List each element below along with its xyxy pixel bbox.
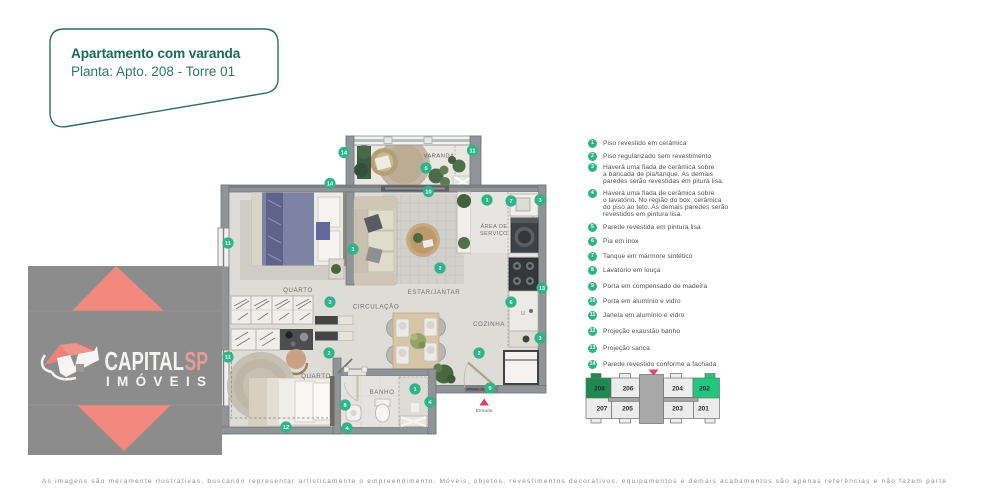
svg-text:2: 2 <box>328 300 331 306</box>
svg-text:CAPITAL: CAPITAL <box>105 346 185 376</box>
svg-text:13: 13 <box>539 286 545 292</box>
svg-text:SP: SP <box>185 346 209 376</box>
svg-text:ESTAR/JANTAR: ESTAR/JANTAR <box>408 289 461 296</box>
svg-text:u: u <box>521 310 525 317</box>
svg-text:201: 201 <box>698 406 709 413</box>
svg-text:8: 8 <box>343 403 346 409</box>
svg-text:2: 2 <box>438 266 441 272</box>
svg-text:10: 10 <box>425 190 431 196</box>
svg-text:CIRCULAÇÃO: CIRCULAÇÃO <box>353 304 400 311</box>
svg-text:11: 11 <box>225 355 231 361</box>
svg-text:VARANDA: VARANDA <box>423 154 454 160</box>
svg-text:QUARTO: QUARTO <box>301 373 331 380</box>
svg-text:206: 206 <box>623 386 634 393</box>
svg-text:11: 11 <box>470 149 476 155</box>
svg-text:BANHO: BANHO <box>369 389 394 396</box>
svg-text:1: 1 <box>351 247 354 253</box>
svg-text:12: 12 <box>283 425 289 431</box>
svg-text:204: 204 <box>672 386 683 393</box>
svg-text:14: 14 <box>327 182 334 188</box>
svg-text:203: 203 <box>672 406 683 413</box>
svg-text:2: 2 <box>477 351 480 357</box>
svg-text:3: 3 <box>538 198 541 204</box>
svg-text:Entrada: Entrada <box>476 408 493 414</box>
svg-text:7: 7 <box>509 199 512 205</box>
svg-text:2: 2 <box>327 351 330 357</box>
svg-text:14: 14 <box>341 151 348 157</box>
svg-text:11: 11 <box>225 241 231 247</box>
svg-text:202: 202 <box>699 386 710 393</box>
svg-text:QUARTO: QUARTO <box>283 287 313 294</box>
svg-text:3: 3 <box>538 336 541 342</box>
svg-text:1: 1 <box>485 198 488 204</box>
svg-text:ÁREA DE: ÁREA DE <box>480 223 507 230</box>
svg-text:1: 1 <box>413 387 416 393</box>
svg-text:6: 6 <box>509 300 512 306</box>
svg-text:9: 9 <box>488 386 491 392</box>
svg-text:207: 207 <box>597 406 608 413</box>
svg-text:COZINHA: COZINHA <box>473 321 505 328</box>
svg-text:SERVIÇO: SERVIÇO <box>480 231 508 237</box>
svg-text:205: 205 <box>622 406 633 413</box>
svg-text:5: 5 <box>424 166 427 172</box>
svg-text:208: 208 <box>594 386 605 393</box>
